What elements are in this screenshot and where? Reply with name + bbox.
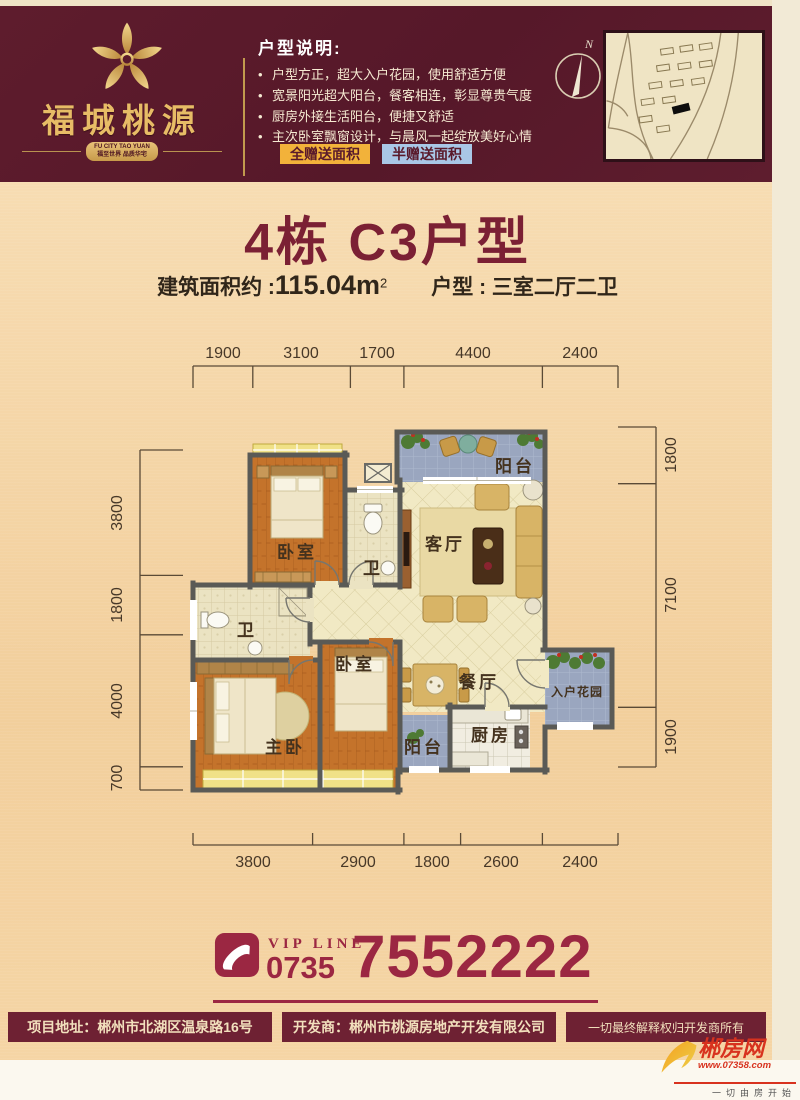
- unit-subtitle: 建筑面积约 :115.04m2 户型 : 三室二厅二卫: [0, 270, 775, 301]
- label-living: 客厅: [424, 534, 465, 554]
- area-value: 115.04m: [275, 270, 380, 300]
- layout-label: 户型 : 三室二厅二卫: [431, 271, 618, 301]
- label-bedroom-top: 卧室: [277, 542, 317, 562]
- brand-tagline-cn: 福至世界 品质华宅: [97, 152, 147, 158]
- svg-text:2600: 2600: [483, 854, 519, 871]
- dims-left: 3800 1800 4000 700: [98, 425, 183, 800]
- dims-top: 1900 3100 1700 4400 2400: [185, 338, 665, 388]
- tagline-rule-right: [163, 151, 222, 152]
- label-master: 主卧: [265, 737, 305, 757]
- spec-bullet: 厨房外接生活阳台，便捷又舒适: [258, 107, 570, 128]
- svg-text:1800: 1800: [109, 587, 126, 623]
- brand-tagline: FU CITY TAO YUAN 福至世界 品质华宅: [22, 142, 222, 161]
- phone-number: 7552222: [352, 922, 593, 991]
- compass-icon: N: [548, 32, 610, 110]
- tagline-rule-left: [22, 151, 81, 152]
- svg-text:7100: 7100: [663, 577, 680, 613]
- phone-area-code: 0735: [266, 950, 335, 986]
- brand-tagline-en: FU CITY TAO YUAN: [94, 144, 150, 150]
- dims-bottom: 3800 2900 1800 2600 2400: [185, 833, 665, 883]
- site-logo-swoosh-icon: [660, 1038, 698, 1080]
- badge-half-gift-area: 半赠送面积: [382, 144, 472, 164]
- area-sup: 2: [380, 276, 387, 291]
- svg-text:1700: 1700: [359, 345, 395, 362]
- svg-text:1900: 1900: [663, 719, 680, 755]
- compass-north-label: N: [584, 37, 594, 51]
- svg-text:1900: 1900: [205, 345, 241, 362]
- label-kitchen: 厨房: [471, 725, 511, 745]
- label-balcony-bottom: 阳台: [404, 737, 444, 757]
- label-bath-left: 卫: [237, 621, 257, 640]
- svg-text:2400: 2400: [562, 345, 598, 362]
- svg-text:2400: 2400: [562, 854, 598, 871]
- label-balcony-top: 阳台: [495, 456, 535, 476]
- svg-text:4400: 4400: [455, 345, 491, 362]
- unit-description: 户型说明: 户型方正，超大入户花园，使用舒适方便 宽景阳光超大阳台，餐客相连，彰…: [258, 34, 570, 148]
- spec-bullet: 宽景阳光超大阳台，餐客相连，彰显尊贵气度: [258, 86, 570, 107]
- header-divider: [243, 58, 245, 176]
- floor-plan: 卧室 卫 客厅 阳台 卫 卧室 餐厅 入户花园 主卧 阳台 厨房: [185, 420, 665, 815]
- map-highlighted-building: [672, 103, 691, 115]
- location-map: [603, 30, 765, 162]
- header-band: 福城桃源 FU CITY TAO YUAN 福至世界 品质华宅 户型说明: 户型…: [0, 6, 772, 182]
- svg-text:2900: 2900: [340, 854, 376, 871]
- area-label: 建筑面积约 :: [157, 276, 275, 299]
- page-margin-right: [772, 0, 800, 1060]
- brand-flower-icon: [88, 14, 166, 92]
- spec-title: 户型说明:: [258, 34, 570, 59]
- svg-text:1800: 1800: [663, 437, 680, 473]
- label-dining: 餐厅: [459, 672, 499, 692]
- label-bedroom-mid: 卧室: [335, 654, 375, 674]
- ac-platform: [365, 464, 391, 482]
- svg-text:3100: 3100: [283, 345, 319, 362]
- badge-full-gift-area: 全赠送面积: [280, 144, 370, 164]
- label-entry-garden: 入户花园: [551, 684, 603, 699]
- footer-developer: 开发商：郴州市桃源房地产开发有限公司: [282, 1012, 556, 1042]
- site-slogan: 一切由房开始: [660, 1086, 796, 1099]
- phone-underline: [213, 1000, 598, 1003]
- label-bath-top: 卫: [363, 559, 383, 578]
- svg-text:3800: 3800: [235, 854, 271, 871]
- site-name: 郴房网: [698, 1038, 771, 1060]
- site-watermark: 郴房网 www.07358.com 一切由房开始: [660, 1038, 796, 1099]
- watermark-rule: [674, 1082, 796, 1084]
- spec-bullet-list: 户型方正，超大入户花园，使用舒适方便 宽景阳光超大阳台，餐客相连，彰显尊贵气度 …: [258, 65, 570, 148]
- svg-text:1800: 1800: [414, 854, 450, 871]
- svg-text:700: 700: [109, 765, 126, 792]
- unit-title: 4栋 C3户型: [0, 200, 775, 275]
- svg-text:3800: 3800: [109, 495, 126, 531]
- phone-icon: [214, 932, 260, 978]
- site-url: www.07358.com: [698, 1060, 771, 1071]
- svg-text:4000: 4000: [109, 683, 126, 719]
- footer-address: 项目地址：郴州市北湖区温泉路16号: [8, 1012, 272, 1042]
- brand-name: 福城桃源: [0, 94, 244, 142]
- spec-bullet: 户型方正，超大入户花园，使用舒适方便: [258, 65, 570, 86]
